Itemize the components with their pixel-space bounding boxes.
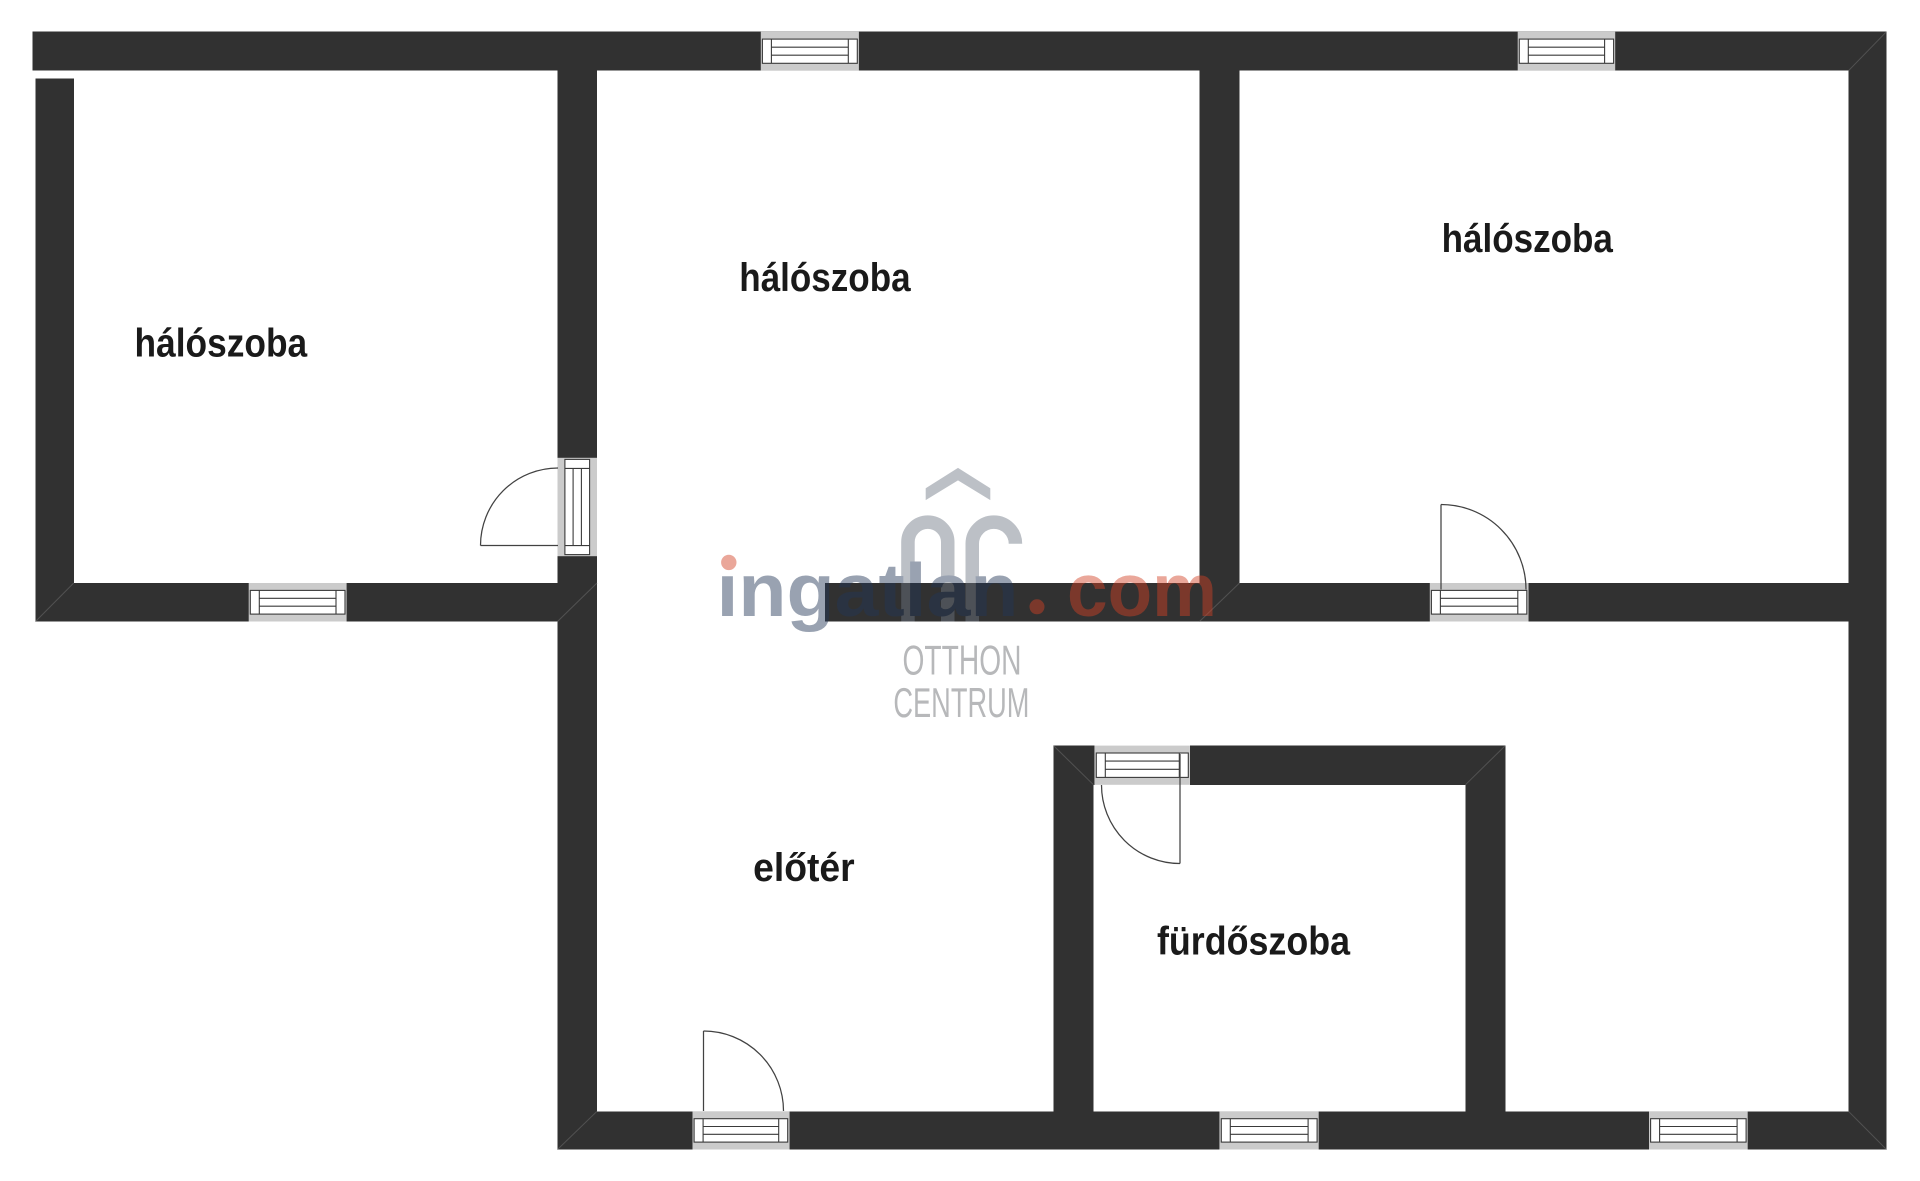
svg-text:hálószoba: hálószoba xyxy=(739,256,911,300)
svg-text:ıngatlan: ıngatlan xyxy=(717,548,1019,632)
svg-text:hálószoba: hálószoba xyxy=(1442,217,1614,261)
svg-text:OTTHON: OTTHON xyxy=(903,637,1022,684)
svg-text:com: com xyxy=(1067,548,1217,632)
svg-text:CENTRUM: CENTRUM xyxy=(893,679,1029,726)
svg-text:hálószoba: hálószoba xyxy=(135,321,308,365)
svg-text:előtér: előtér xyxy=(753,846,855,890)
svg-text:fürdőszoba: fürdőszoba xyxy=(1157,920,1351,964)
